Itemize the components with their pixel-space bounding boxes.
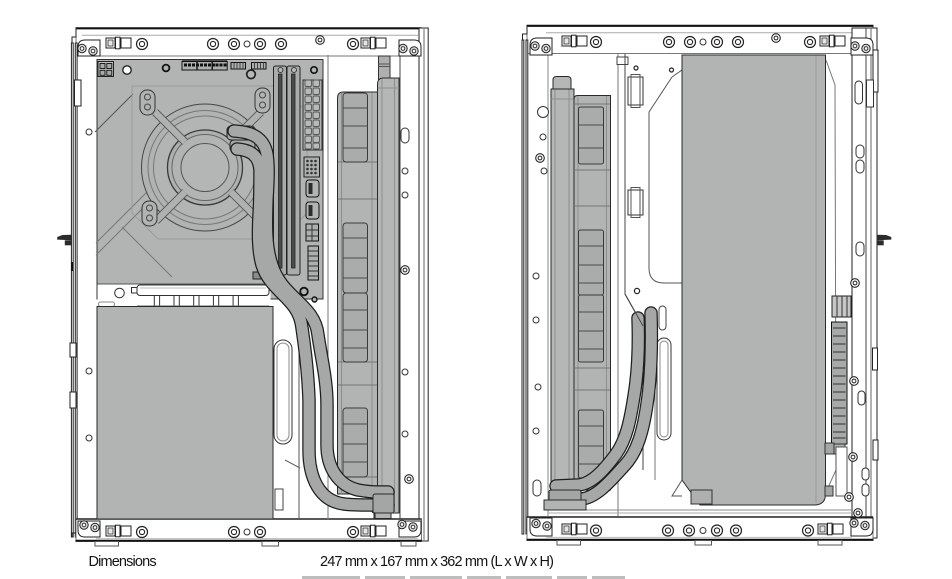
svg-text:247 mm x 167 mm x 362 mm (L x: 247 mm x 167 mm x 362 mm (L x W x H) [320,554,553,570]
svg-text:Dimensions: Dimensions [89,554,157,570]
